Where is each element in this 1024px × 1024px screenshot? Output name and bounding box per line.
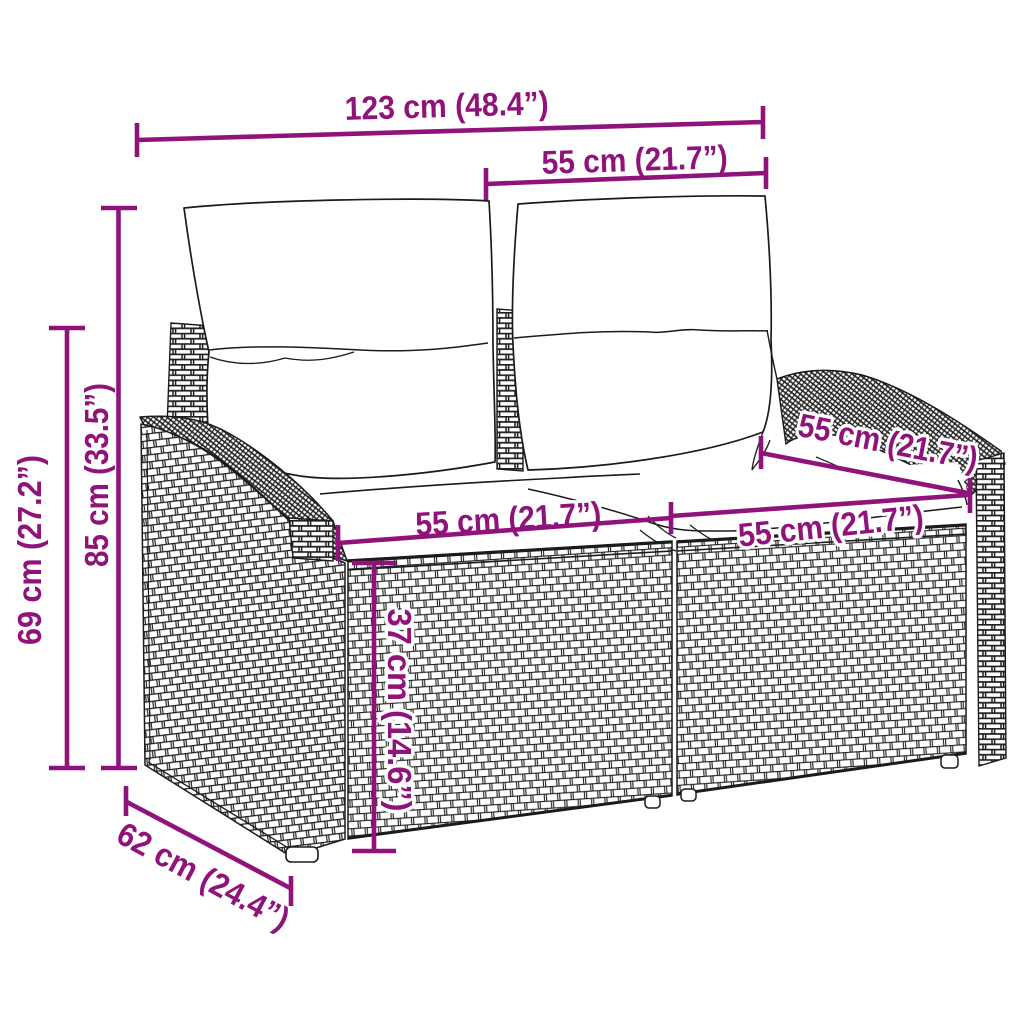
svg-text:85 cm (33.5”): 85 cm (33.5”) (78, 383, 115, 567)
svg-text:123 cm (48.4”): 123 cm (48.4”) (344, 84, 549, 127)
svg-text:69 cm (27.2”): 69 cm (27.2”) (11, 455, 48, 645)
svg-text:37 cm (14.6”): 37 cm (14.6”) (381, 609, 418, 812)
